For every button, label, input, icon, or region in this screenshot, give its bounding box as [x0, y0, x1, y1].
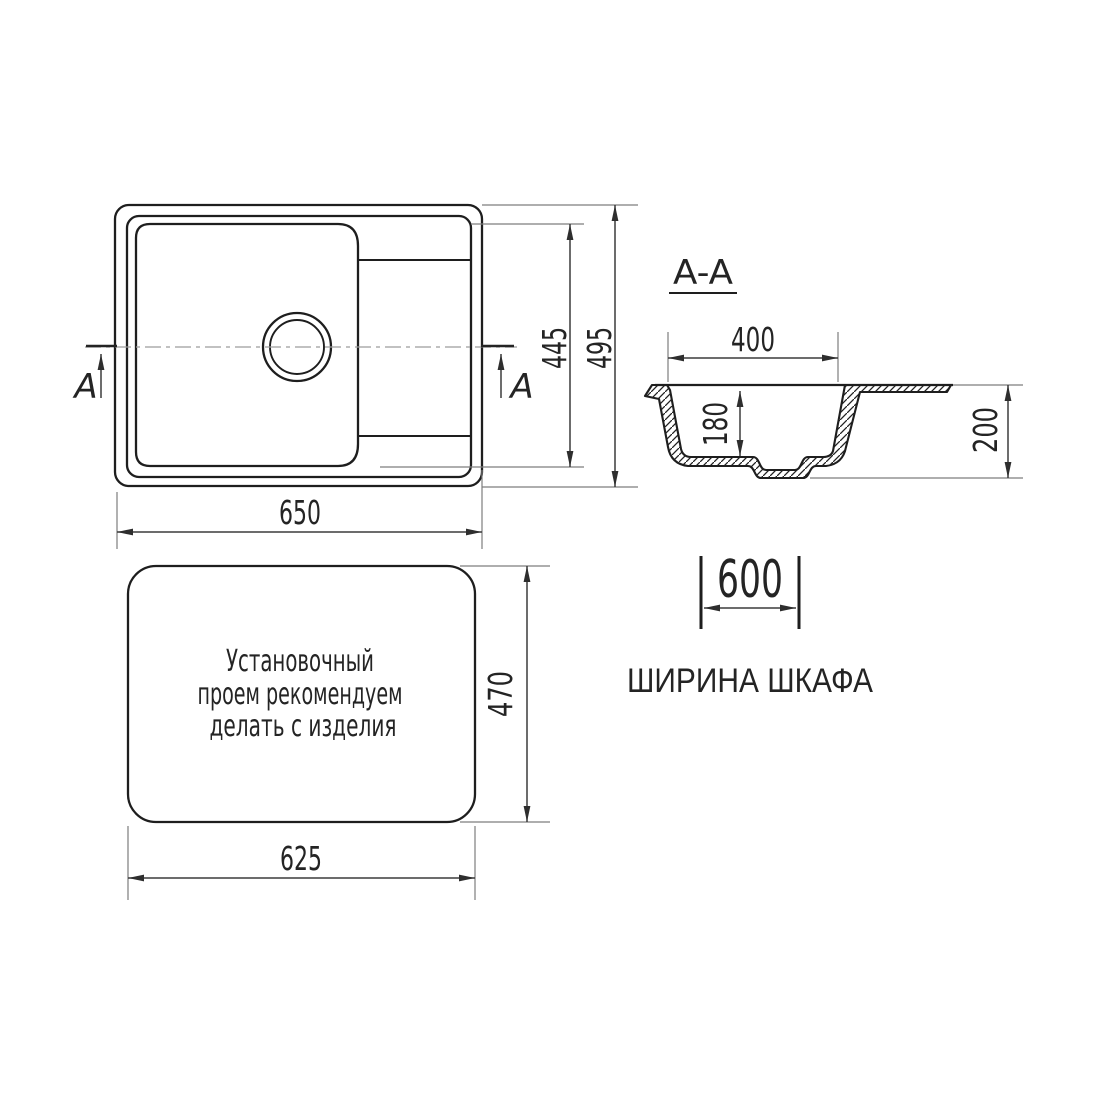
technical-drawing-page: A A 650 445 495 A-A 400 180: [0, 0, 1100, 1100]
cutout-view: Установочный проем рекомендуем делать с …: [128, 566, 550, 900]
dim-445-label: 445: [535, 327, 574, 369]
dim-650-label: 650: [279, 493, 321, 532]
section-letter-left: A: [72, 367, 97, 407]
sink-outer-outline: [115, 205, 482, 486]
note-line-1: Установочный: [226, 644, 374, 679]
cabinet-width-label: 600: [717, 550, 783, 610]
dim-200-label: 200: [966, 407, 1005, 453]
dim-470-label: 470: [481, 671, 520, 717]
section-view: A-A 400 180 200: [645, 253, 1023, 478]
note-line-2: проем рекомендуем: [198, 677, 403, 712]
cabinet-caption: ШИРИНА ШКАФА: [627, 662, 873, 700]
section-title: A-A: [673, 253, 733, 293]
top-view: A A 650 445 495: [72, 205, 638, 549]
dim-180-label: 180: [696, 402, 735, 446]
note-line-3: делать с изделия: [210, 709, 397, 744]
section-letter-right: A: [508, 367, 533, 407]
dim-625-label: 625: [280, 839, 322, 878]
dim-495-label: 495: [580, 327, 619, 369]
sink-technical-drawing: A A 650 445 495 A-A 400 180: [0, 0, 1100, 1100]
dim-400-label: 400: [731, 320, 775, 359]
cabinet-width-note: 600 ШИРИНА ШКАФА: [627, 550, 873, 700]
section-profile: [645, 385, 951, 478]
